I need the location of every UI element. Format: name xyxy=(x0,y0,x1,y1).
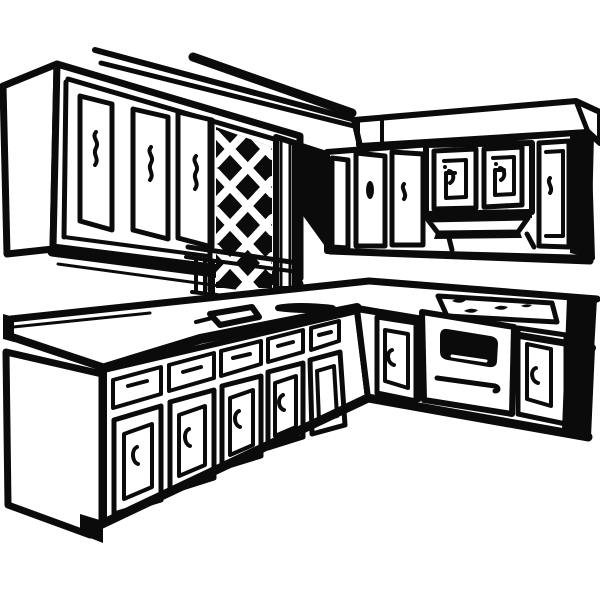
cabinet-side-panel xyxy=(3,64,57,254)
sink-basin-2 xyxy=(275,303,337,313)
door-handle-dot xyxy=(443,165,447,169)
hood-leg xyxy=(449,238,452,250)
narrow-door-1 xyxy=(332,158,348,248)
door-handle-squiggle xyxy=(94,132,97,165)
door-handle-squiggle xyxy=(403,184,405,199)
narrow-door-2 xyxy=(356,153,385,246)
oven-window xyxy=(442,331,496,365)
upper-door-2 xyxy=(133,109,168,239)
upper-door-1 xyxy=(80,96,112,230)
door-handle-squiggle xyxy=(549,178,551,193)
upper-door-3 xyxy=(178,112,212,247)
kitchen-illustration: Kitchen cabinets line-art illustration xyxy=(0,0,600,600)
square-door-left xyxy=(434,149,476,209)
door-handle-squiggle xyxy=(149,147,152,180)
door-handle-squiggle xyxy=(194,156,197,189)
oven xyxy=(422,312,514,414)
upper-cabinets-right xyxy=(327,132,594,261)
base-side-panel xyxy=(6,352,102,535)
narrow-door-3 xyxy=(392,152,423,245)
square-door-right xyxy=(484,147,522,207)
center-cabinet-unit xyxy=(426,143,532,214)
lattice-legs xyxy=(192,259,217,295)
tall-right-door xyxy=(539,141,569,247)
kitchen-line-art: Kitchen cabinets line-art illustration xyxy=(0,0,600,600)
door-handle-dot xyxy=(366,181,374,199)
cabinet-end-panel xyxy=(570,133,594,258)
pillar xyxy=(276,137,295,289)
door-handle-dot xyxy=(494,162,498,166)
